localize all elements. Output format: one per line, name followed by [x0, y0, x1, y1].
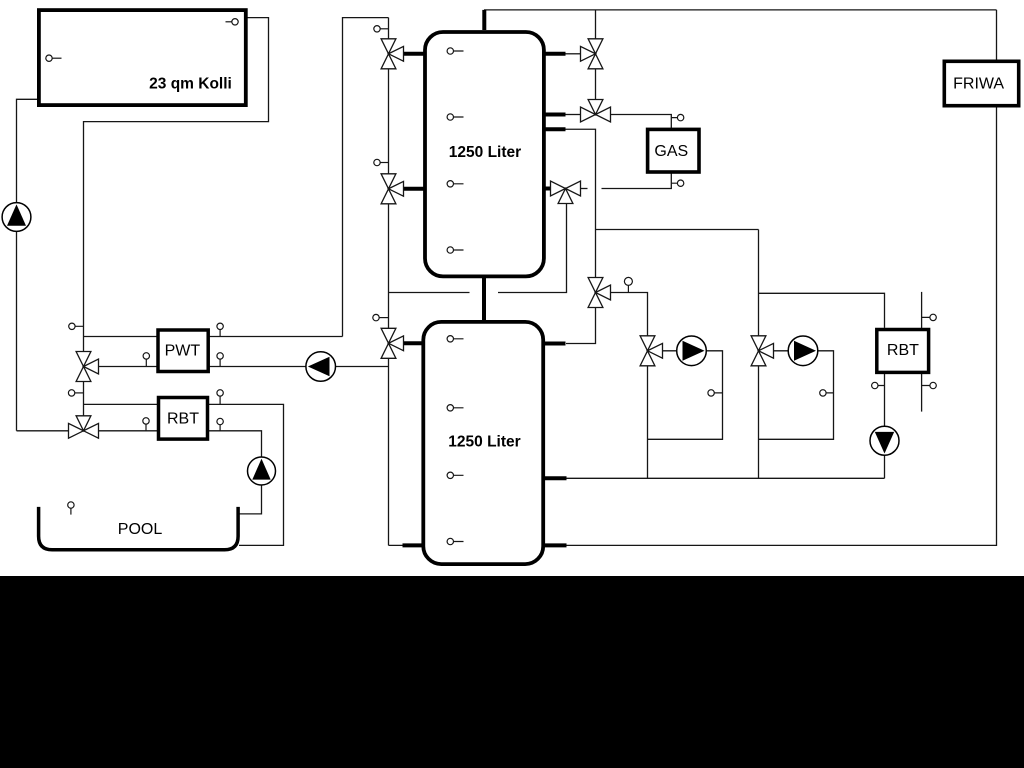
svg-text:RBT: RBT [887, 342, 919, 359]
svg-text:RBT: RBT [167, 410, 199, 427]
svg-text:23 qm Kolli: 23 qm Kolli [149, 76, 232, 93]
svg-text:PWT: PWT [165, 343, 201, 360]
svg-text:FRIWA: FRIWA [953, 76, 1004, 93]
svg-text:1250 Liter: 1250 Liter [448, 434, 520, 451]
svg-text:1250 Liter: 1250 Liter [449, 144, 521, 161]
svg-text:GAS: GAS [654, 143, 688, 160]
svg-text:POOL: POOL [118, 521, 163, 538]
